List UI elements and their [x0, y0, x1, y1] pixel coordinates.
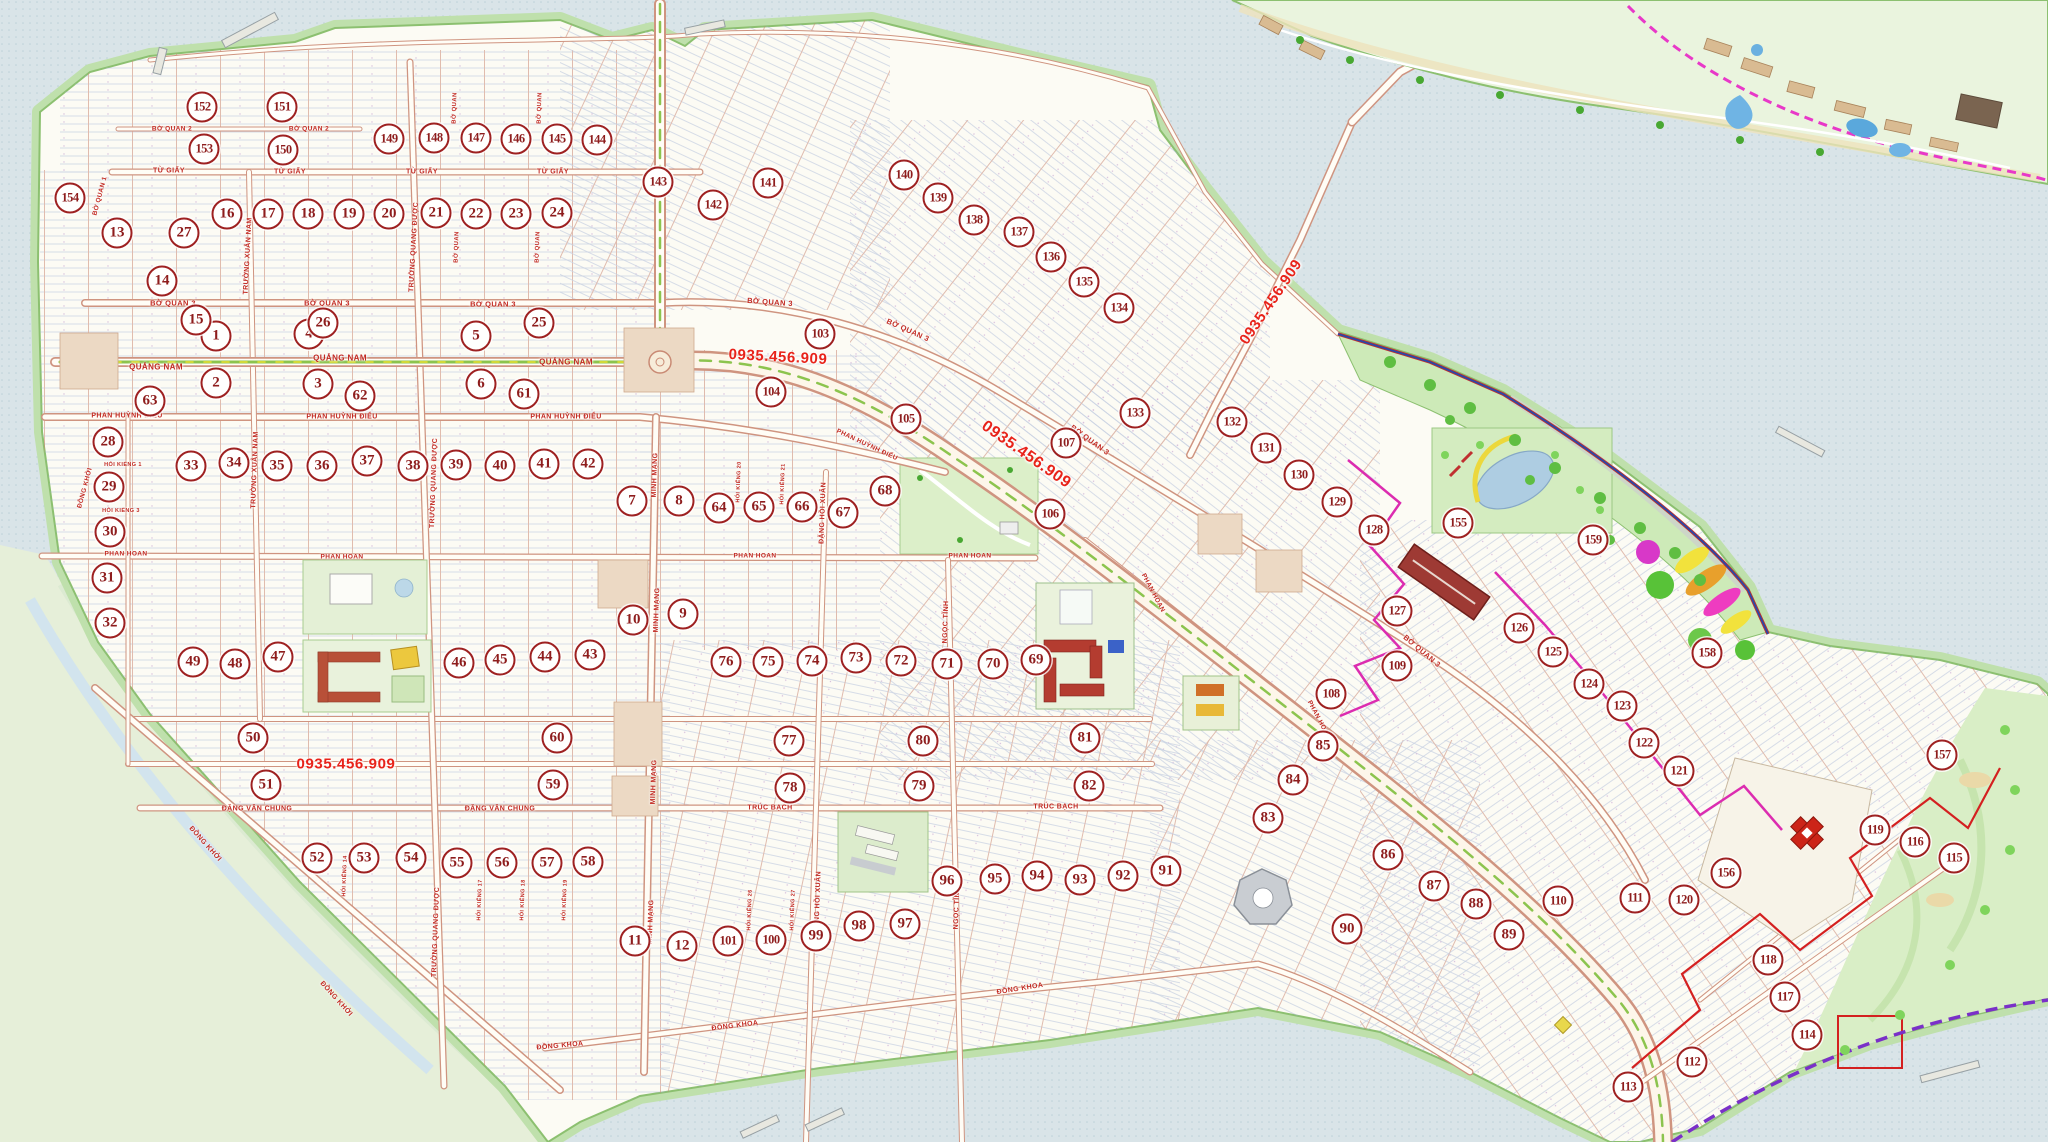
- school-pool: [1108, 640, 1124, 653]
- map-canvas: TỪ GIẤYTỪ GIẤYTỪ GIẤYTỪ GIẤYBỜ QUAN 2BỜ …: [0, 0, 2048, 1142]
- roundabout: [649, 351, 671, 373]
- school-yellow-building: [391, 646, 420, 669]
- map-base: [0, 0, 2048, 1142]
- resort-pool-small: [1889, 143, 1911, 157]
